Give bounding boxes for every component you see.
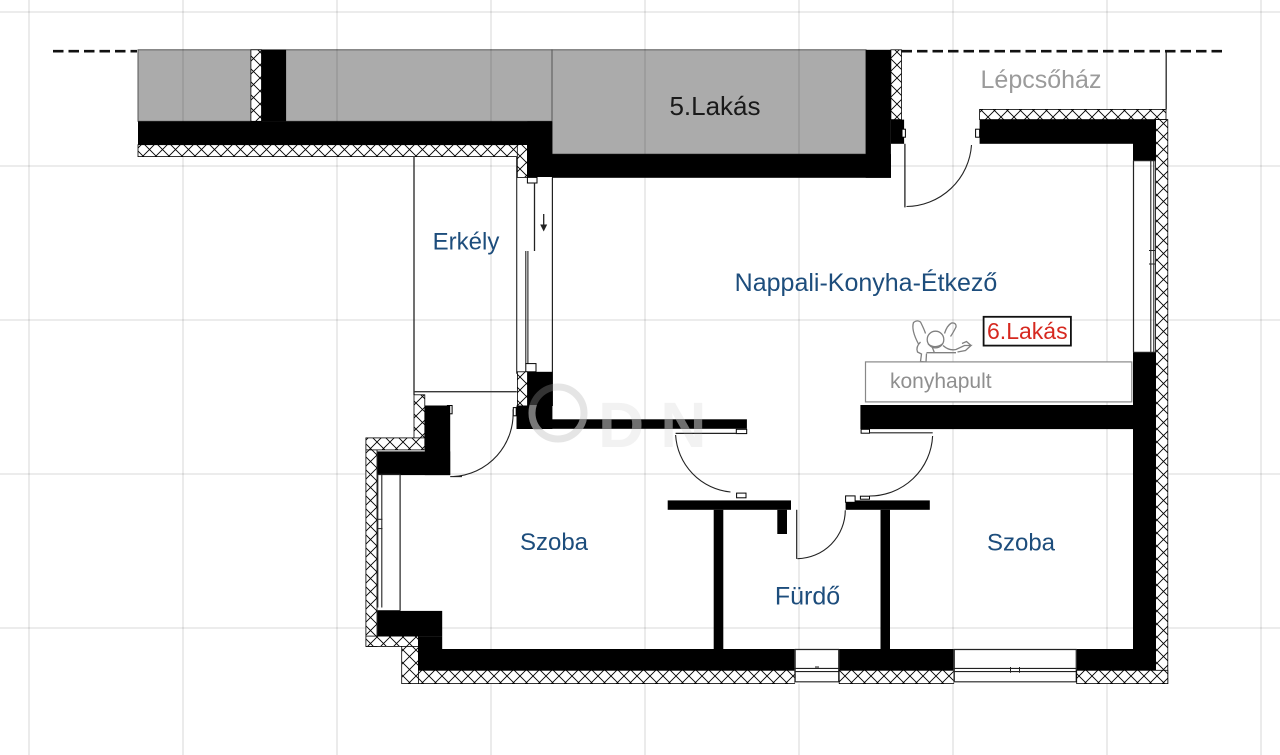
svg-text:Szoba: Szoba — [987, 530, 1056, 557]
svg-text:Erkély: Erkély — [433, 229, 500, 256]
svg-text:Szoba: Szoba — [520, 529, 589, 556]
svg-text:Nappali-Konyha-Étkező: Nappali-Konyha-Étkező — [735, 268, 998, 297]
svg-text:6.Lakás: 6.Lakás — [987, 318, 1068, 344]
svg-text:konyhapult: konyhapult — [890, 370, 992, 393]
svg-text:Fürdő: Fürdő — [775, 583, 840, 611]
svg-text:5.Lakás: 5.Lakás — [669, 91, 760, 121]
svg-text:DN: DN — [598, 389, 722, 461]
svg-text:Lépcsőház: Lépcsőház — [981, 66, 1102, 94]
